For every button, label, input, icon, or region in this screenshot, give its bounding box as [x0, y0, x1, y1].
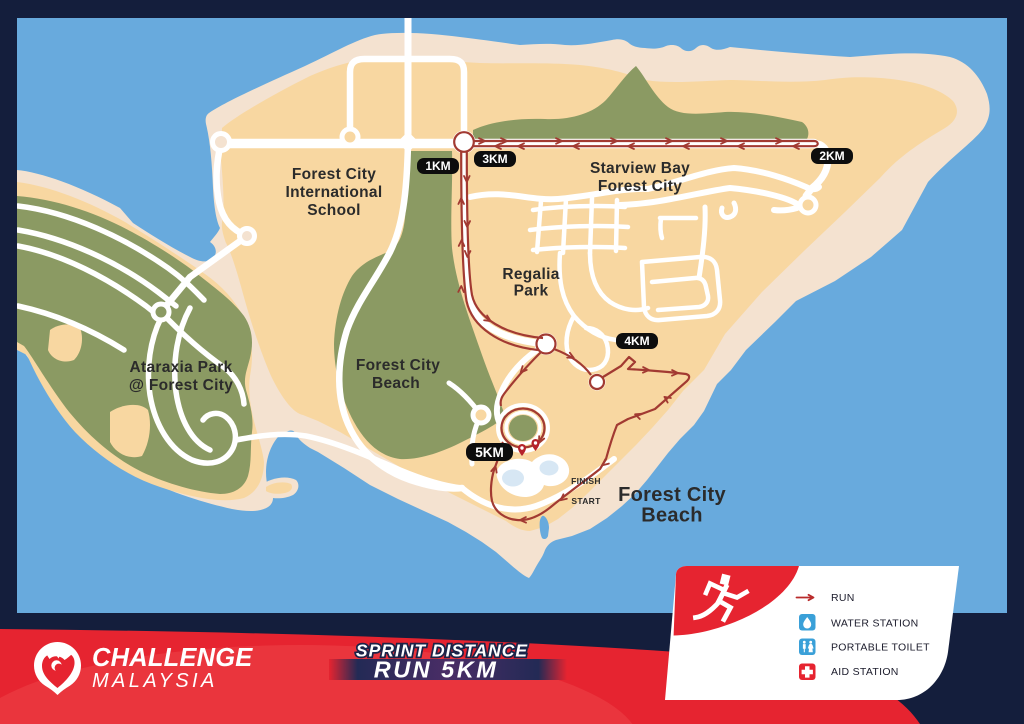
svg-text:3KM: 3KM [482, 152, 507, 166]
svg-text:START: START [571, 496, 601, 506]
svg-text:International: International [286, 184, 383, 201]
svg-text:5KM: 5KM [475, 445, 504, 460]
svg-text:RUN: RUN [831, 592, 855, 604]
svg-text:Regalia: Regalia [502, 266, 559, 283]
svg-text:CHALLENGE: CHALLENGE [92, 644, 253, 672]
svg-text:@ Forest City: @ Forest City [129, 377, 233, 394]
svg-text:RUN 5KM: RUN 5KM [374, 657, 499, 683]
svg-text:Forest City: Forest City [356, 357, 440, 374]
svg-text:School: School [307, 202, 360, 219]
svg-text:MALAYSIA: MALAYSIA [92, 670, 218, 692]
svg-text:4KM: 4KM [624, 334, 649, 348]
svg-text:Forest City: Forest City [292, 166, 376, 183]
svg-text:Forest City: Forest City [598, 178, 682, 195]
svg-text:FINISH: FINISH [571, 476, 601, 486]
svg-text:Beach: Beach [372, 375, 420, 392]
svg-text:Starview Bay: Starview Bay [590, 160, 690, 177]
svg-text:Beach: Beach [641, 505, 703, 527]
svg-text:WATER STATION: WATER STATION [831, 618, 919, 630]
svg-text:2KM: 2KM [819, 149, 844, 163]
svg-text:1KM: 1KM [425, 159, 450, 173]
svg-text:Ataraxia Park: Ataraxia Park [130, 359, 233, 376]
svg-text:Park: Park [514, 283, 549, 300]
svg-text:AID STATION: AID STATION [831, 666, 899, 678]
svg-text:PORTABLE TOILET: PORTABLE TOILET [831, 642, 930, 654]
svg-text:Forest City: Forest City [618, 484, 726, 506]
